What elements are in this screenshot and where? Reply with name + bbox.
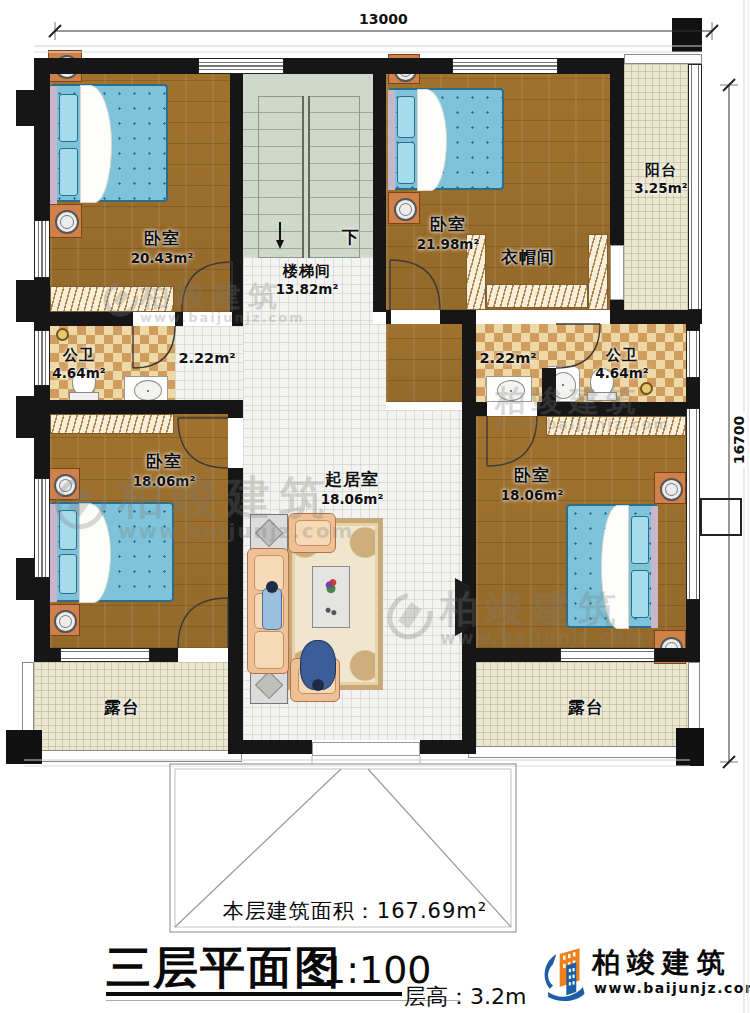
window (560, 648, 655, 662)
cloakroom-wardrobe-right (588, 234, 608, 310)
wall (228, 414, 243, 418)
stair-handrail (302, 96, 310, 258)
wall (50, 400, 243, 414)
wall-pilaster (16, 558, 34, 600)
window (686, 330, 700, 378)
page-title: 三层平面图 (106, 938, 341, 998)
wall (420, 740, 462, 754)
label-bedroom-top-right: 卧室 21.98m² (417, 215, 480, 253)
nightstand (388, 192, 420, 224)
wall (686, 378, 700, 408)
wall (232, 312, 243, 326)
wardrobe-bedroom-top-left (50, 286, 174, 312)
sink (124, 376, 168, 402)
pendant-light-icon (640, 382, 653, 395)
wall (34, 648, 60, 662)
person-sitting (300, 640, 336, 690)
wall (228, 648, 243, 754)
label-terrace-left: 露台 (104, 698, 140, 718)
wall (175, 312, 183, 326)
title-underline (106, 992, 402, 996)
window (686, 408, 700, 600)
brand-logo-icon (538, 944, 588, 1002)
wall-pilaster (16, 396, 34, 438)
bed (50, 502, 174, 602)
window (34, 220, 50, 278)
wall (686, 600, 700, 662)
wardrobe-bedroom-mid-right (546, 416, 686, 436)
wall (373, 74, 386, 312)
wardrobe-bedroom-mid-left (50, 414, 174, 434)
wall-pilaster (16, 280, 34, 322)
label-bedroom-mid-right: 卧室 18.06m² (501, 466, 564, 504)
brand-logo: 柏竣建筑 www.baijunjz.com (538, 942, 744, 1006)
wall-pilaster (16, 90, 34, 126)
label-bedroom-mid-left: 卧室 18.06m² (133, 452, 196, 490)
wall (462, 310, 476, 648)
window (198, 58, 284, 74)
brand-name: 柏竣建筑 (592, 944, 732, 982)
window (34, 478, 50, 578)
wall (243, 740, 312, 754)
column (672, 18, 702, 52)
label-bedroom-top-left: 卧室 20.43m² (131, 229, 194, 267)
wall (476, 402, 487, 416)
wall (228, 468, 243, 648)
wall (440, 310, 462, 324)
wall (655, 648, 686, 662)
wall (462, 648, 560, 662)
pendant-light-icon (56, 328, 69, 341)
balcony-doorway-threshold (610, 245, 624, 300)
nightstand (48, 468, 80, 500)
cloakroom-wardrobe-bottom (486, 284, 588, 308)
label-hall-left: 2.22m² (178, 349, 235, 367)
balcony-parapet (624, 54, 702, 64)
window (34, 330, 50, 386)
wall (150, 648, 178, 662)
nightstand (48, 204, 82, 238)
toilet-tank (587, 392, 617, 401)
bed (388, 88, 504, 190)
label-hall-right: 2.22m² (479, 349, 536, 367)
terrace-parapet (468, 746, 692, 758)
coffee-table (312, 566, 350, 628)
bed (50, 84, 168, 202)
label-terrace-right: 露台 (568, 698, 604, 718)
wall (686, 310, 700, 330)
wall (50, 312, 133, 326)
side-table (250, 514, 288, 552)
column (676, 728, 704, 766)
label-bathroom-left: 公卫 4.64m² (52, 346, 105, 383)
passage-floor (386, 324, 462, 402)
label-living-room: 起居室 18.06m² (321, 470, 384, 508)
balcony-window (688, 64, 702, 310)
label-stairwell: 楼梯间 13.82m² (276, 262, 339, 299)
wall (462, 648, 476, 754)
bed (566, 504, 658, 628)
dimension-top: 13000 (356, 11, 411, 27)
wall (542, 368, 556, 402)
label-cloakroom: 衣帽间 (501, 248, 555, 268)
nightstand (48, 604, 80, 636)
label-balcony: 阳台 3.25m² (634, 161, 687, 198)
dimension-right: 16700 (731, 413, 747, 468)
floor-height-label: 层高：3.2m (404, 982, 526, 1012)
column (6, 730, 42, 764)
label-bathroom-right: 公卫 4.64m² (595, 346, 648, 383)
armchair (288, 513, 336, 553)
window (60, 648, 150, 662)
wall (537, 402, 686, 416)
brand-url: www.baijunjz.com (594, 980, 750, 996)
wall (610, 74, 624, 245)
terrace-doorway-threshold (312, 742, 420, 756)
sink (486, 376, 532, 402)
floorplan-page: { "plan": { "dimension_top": "13000", "d… (0, 0, 750, 1013)
person-lying (262, 588, 282, 630)
wall (386, 310, 391, 324)
wall (230, 74, 243, 312)
nightstand (654, 472, 686, 504)
label-stairs-down: 下 (342, 228, 360, 248)
corridor-floor (243, 324, 386, 410)
terrace-parapet (22, 750, 242, 762)
floor-area-note: 本层建筑面积：167.69m² (223, 897, 487, 925)
window (452, 58, 558, 74)
bay-window (700, 498, 742, 536)
